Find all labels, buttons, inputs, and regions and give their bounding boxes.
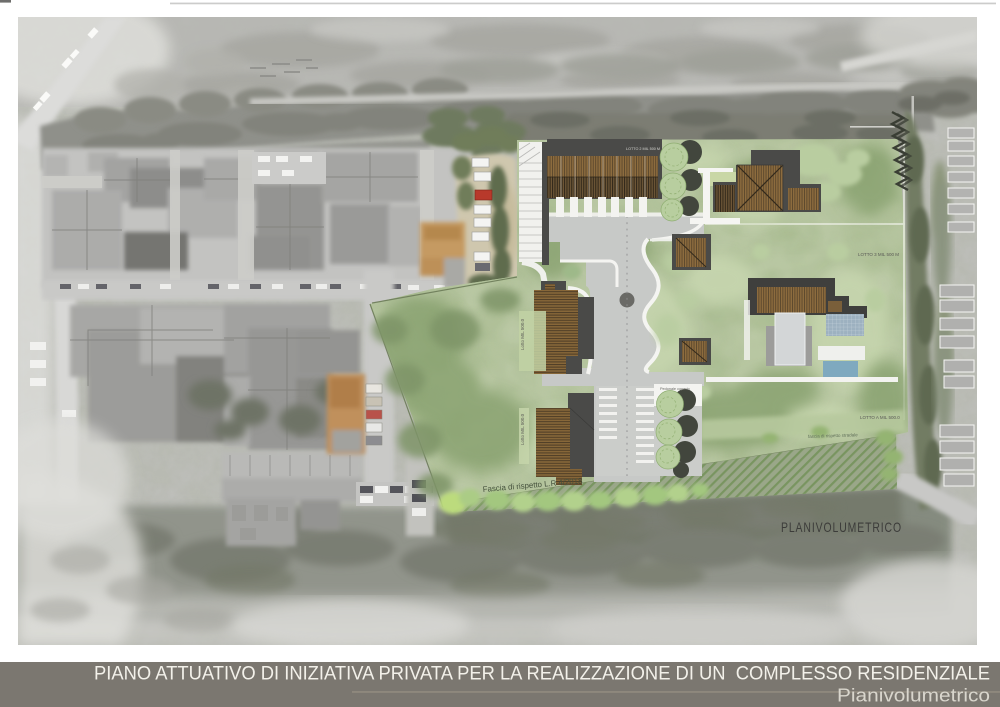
svg-text:Pianivolumetrico: Pianivolumetrico	[837, 685, 990, 706]
svg-text:Lotto MIL 500.0: Lotto MIL 500.0	[520, 318, 525, 350]
svg-text:Lotto MIL 500.0: Lotto MIL 500.0	[520, 413, 525, 445]
svg-text:PLANIVOLUMETRICO: PLANIVOLUMETRICO	[781, 519, 902, 535]
svg-text:LOTTO 3 MIL 500 M: LOTTO 3 MIL 500 M	[858, 252, 899, 257]
svg-text:LOTTO A MIL 500.0: LOTTO A MIL 500.0	[860, 415, 900, 420]
svg-text:LOTTO 2 MIL 500 M: LOTTO 2 MIL 500 M	[626, 147, 660, 151]
svg-text:Pedonale coperto: Pedonale coperto	[660, 387, 690, 391]
svg-text:PIANO ATTUATIVO DI INIZIATIVA: PIANO ATTUATIVO DI INIZIATIVA PRIVATA PE…	[94, 663, 990, 685]
